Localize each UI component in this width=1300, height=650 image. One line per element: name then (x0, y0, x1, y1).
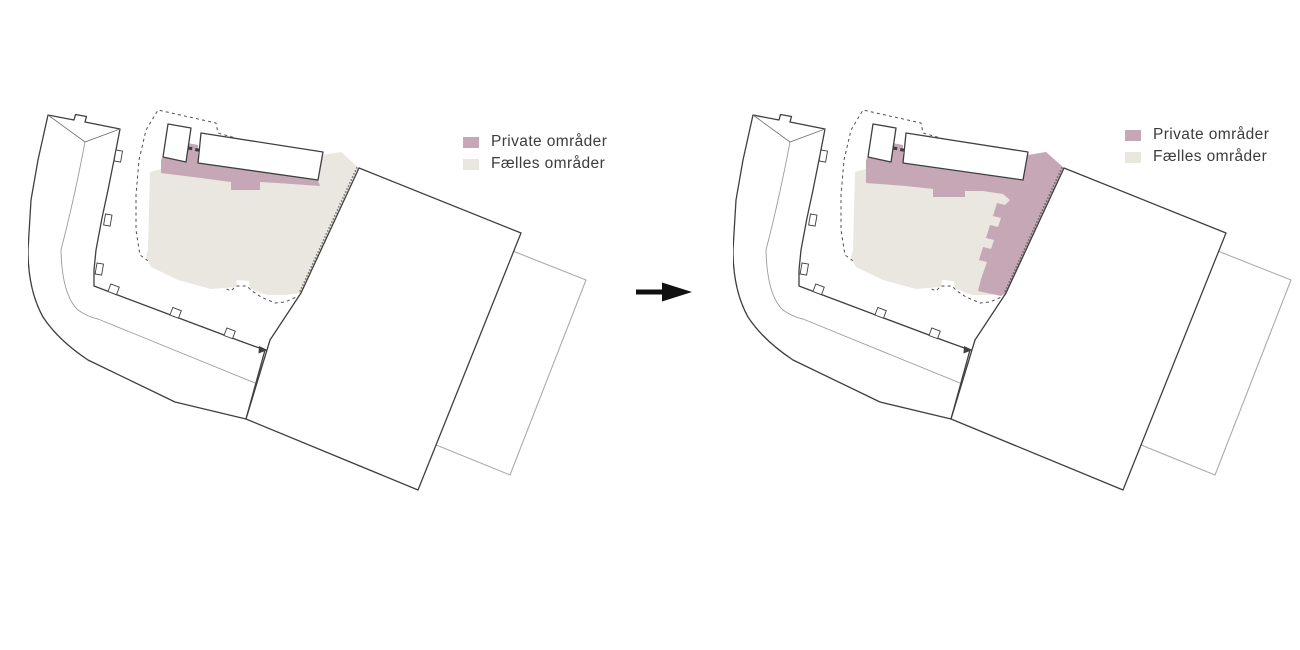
entrance-bump (819, 150, 827, 162)
legend-item: Fælles områder (463, 155, 607, 173)
small-building (163, 124, 191, 162)
legend-label-common: Fælles områder (491, 155, 605, 173)
legend: Private områder Fælles områder (1125, 126, 1269, 166)
legend-label-private: Private områder (491, 133, 607, 151)
legend-swatch-private (1125, 130, 1141, 141)
legend-label-private: Private områder (1153, 126, 1269, 144)
page: Private områder Fælles områder Private o… (0, 0, 1300, 650)
common-color-swatch (1125, 152, 1141, 163)
entrance-bump (800, 263, 808, 275)
entrance-bump (114, 150, 122, 162)
legend-item: Private områder (463, 133, 607, 151)
entrance-bump (95, 263, 103, 275)
small-building (868, 124, 896, 162)
private-color-swatch (1125, 130, 1141, 141)
arrow-shape (636, 283, 692, 302)
legend-swatch-common (463, 159, 479, 170)
legend-item: Fælles områder (1125, 148, 1269, 166)
entrance-bump (104, 214, 112, 226)
common-color-swatch (463, 159, 479, 170)
transform-arrow-icon (636, 281, 696, 303)
legend-label-common: Fælles områder (1153, 148, 1267, 166)
legend-swatch-private (463, 137, 479, 148)
entrance-bump (809, 214, 817, 226)
legend-swatch-common (1125, 152, 1141, 163)
private-color-swatch (463, 137, 479, 148)
legend: Private områder Fælles områder (463, 133, 607, 173)
legend-item: Private områder (1125, 126, 1269, 144)
